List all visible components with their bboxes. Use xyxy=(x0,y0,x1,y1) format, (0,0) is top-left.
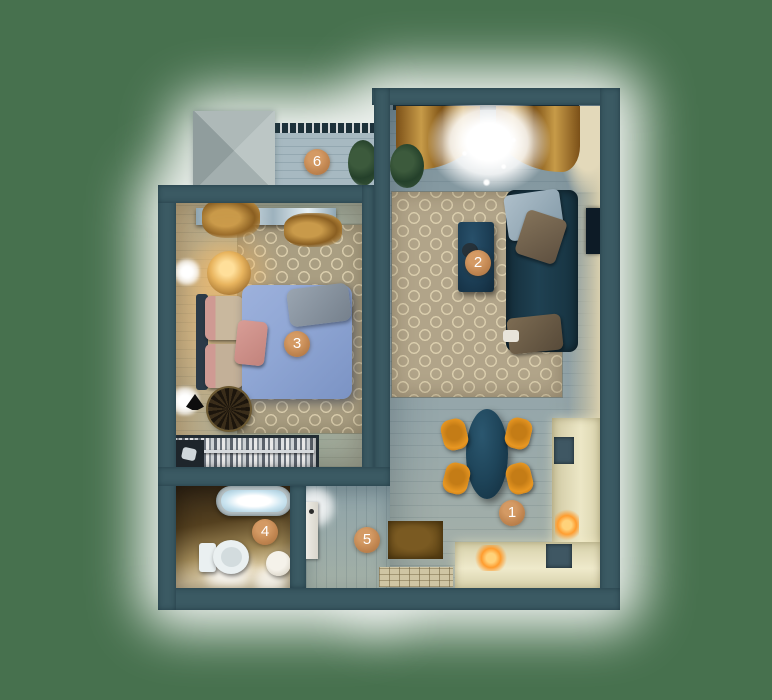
toilet-seat xyxy=(221,547,242,567)
bathtub-water xyxy=(221,490,287,512)
kitchen-sink-recess xyxy=(554,437,574,464)
gold-palm-left xyxy=(202,198,260,238)
woven-pouf xyxy=(208,388,250,430)
hall-rug-brown xyxy=(388,521,443,559)
marker-living-room[interactable]: 2 xyxy=(465,250,491,276)
marker-balcony[interactable]: 6 xyxy=(304,149,330,175)
wall-bedroom-east xyxy=(362,185,374,486)
bath-stool xyxy=(266,551,291,576)
bed-pink-pillow xyxy=(234,320,268,367)
marker-kitchen-dining[interactable]: 1 xyxy=(499,500,525,526)
living-room-plant xyxy=(390,144,424,188)
wall-south xyxy=(158,588,620,610)
marker-bedroom[interactable]: 3 xyxy=(284,331,310,357)
oven-glow xyxy=(555,508,579,542)
stove-glow xyxy=(474,545,508,571)
wall-bedroom-north xyxy=(158,185,390,203)
wall-east xyxy=(600,88,620,610)
wall-living-west xyxy=(374,88,390,486)
bed-gray-fold xyxy=(286,282,352,327)
wall-sconce-1 xyxy=(174,258,200,286)
marker-bathroom[interactable]: 4 xyxy=(252,519,278,545)
wall-bedroom-south xyxy=(158,467,390,486)
floorplan-scene: 1 2 3 4 5 6 xyxy=(0,0,772,700)
sofa-throw xyxy=(503,330,519,342)
wardrobe-folded-item xyxy=(181,447,197,462)
gold-drape-right xyxy=(284,213,342,247)
wall-living-north xyxy=(372,88,620,105)
dining-table xyxy=(466,409,508,499)
wall-tv xyxy=(586,208,601,254)
wall-west xyxy=(158,185,176,610)
kitchen-corner-recess xyxy=(546,544,572,568)
wardrobe-rail xyxy=(204,450,314,453)
marker-hallway[interactable]: 5 xyxy=(354,527,380,553)
wall-bathroom-east xyxy=(290,486,306,588)
chandelier xyxy=(428,105,550,193)
balcony-awning-pyramid xyxy=(193,111,275,187)
door-handle xyxy=(309,509,314,514)
entry-doormat xyxy=(379,567,453,587)
